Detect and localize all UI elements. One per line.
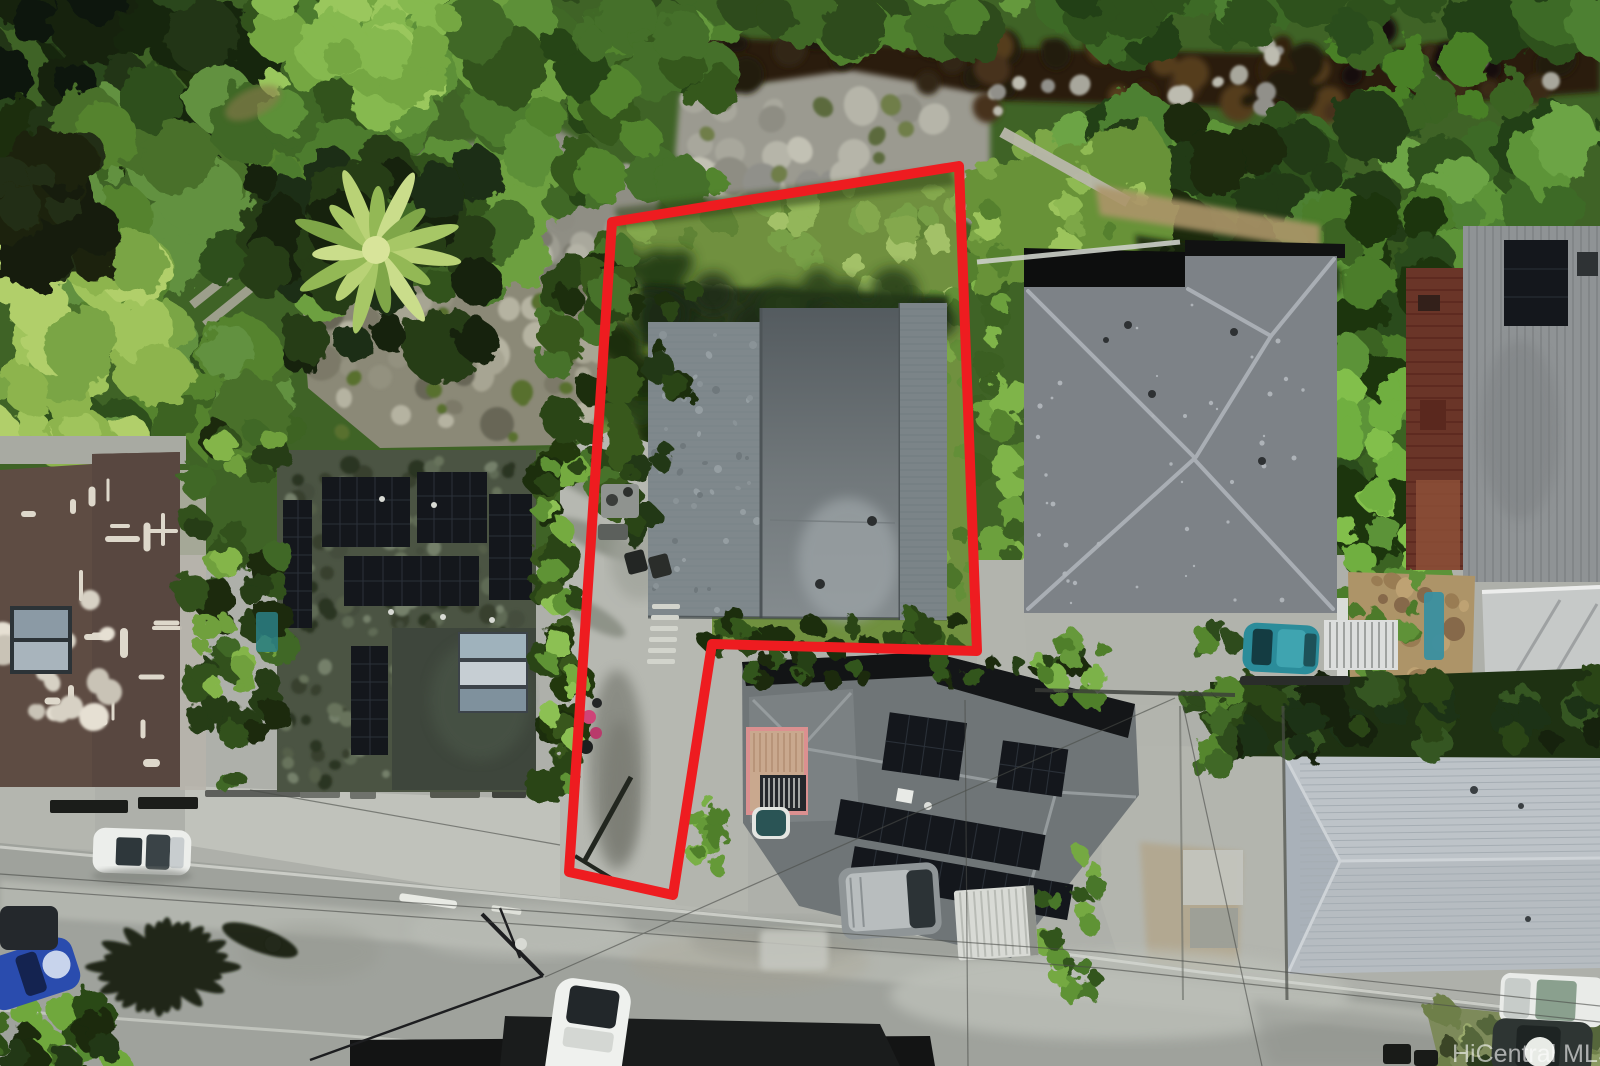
svg-text:HiCentral MLS: HiCentral MLS <box>1452 1040 1600 1066</box>
